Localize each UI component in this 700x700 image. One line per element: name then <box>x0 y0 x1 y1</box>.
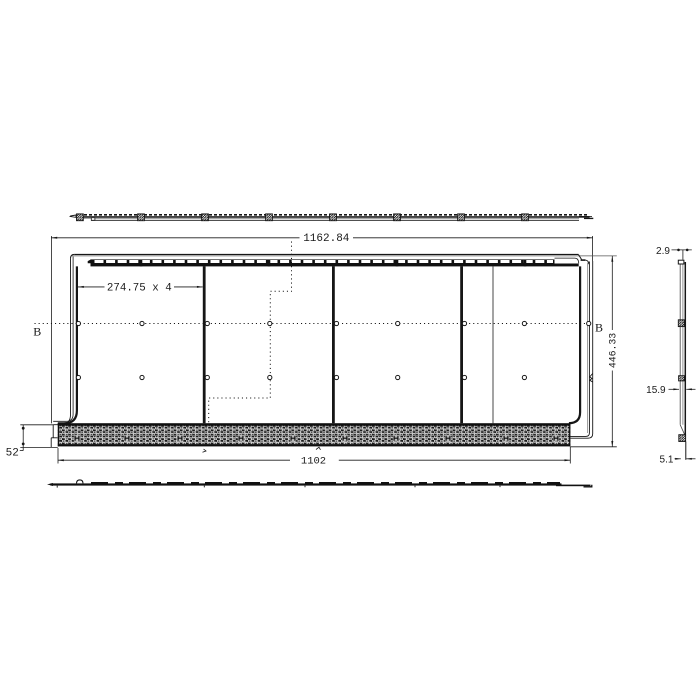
svg-text:B: B <box>33 324 41 338</box>
svg-text:2.9: 2.9 <box>656 246 670 257</box>
svg-text:B: B <box>595 321 603 335</box>
svg-text:15.9: 15.9 <box>646 385 666 396</box>
svg-text:1102: 1102 <box>301 456 326 468</box>
svg-text:5.1: 5.1 <box>660 454 674 465</box>
svg-text:446.33: 446.33 <box>608 333 619 368</box>
svg-text:1162.84: 1162.84 <box>303 233 350 245</box>
svg-text:274.75 x 4: 274.75 x 4 <box>107 283 172 295</box>
svg-text:52: 52 <box>6 447 19 459</box>
